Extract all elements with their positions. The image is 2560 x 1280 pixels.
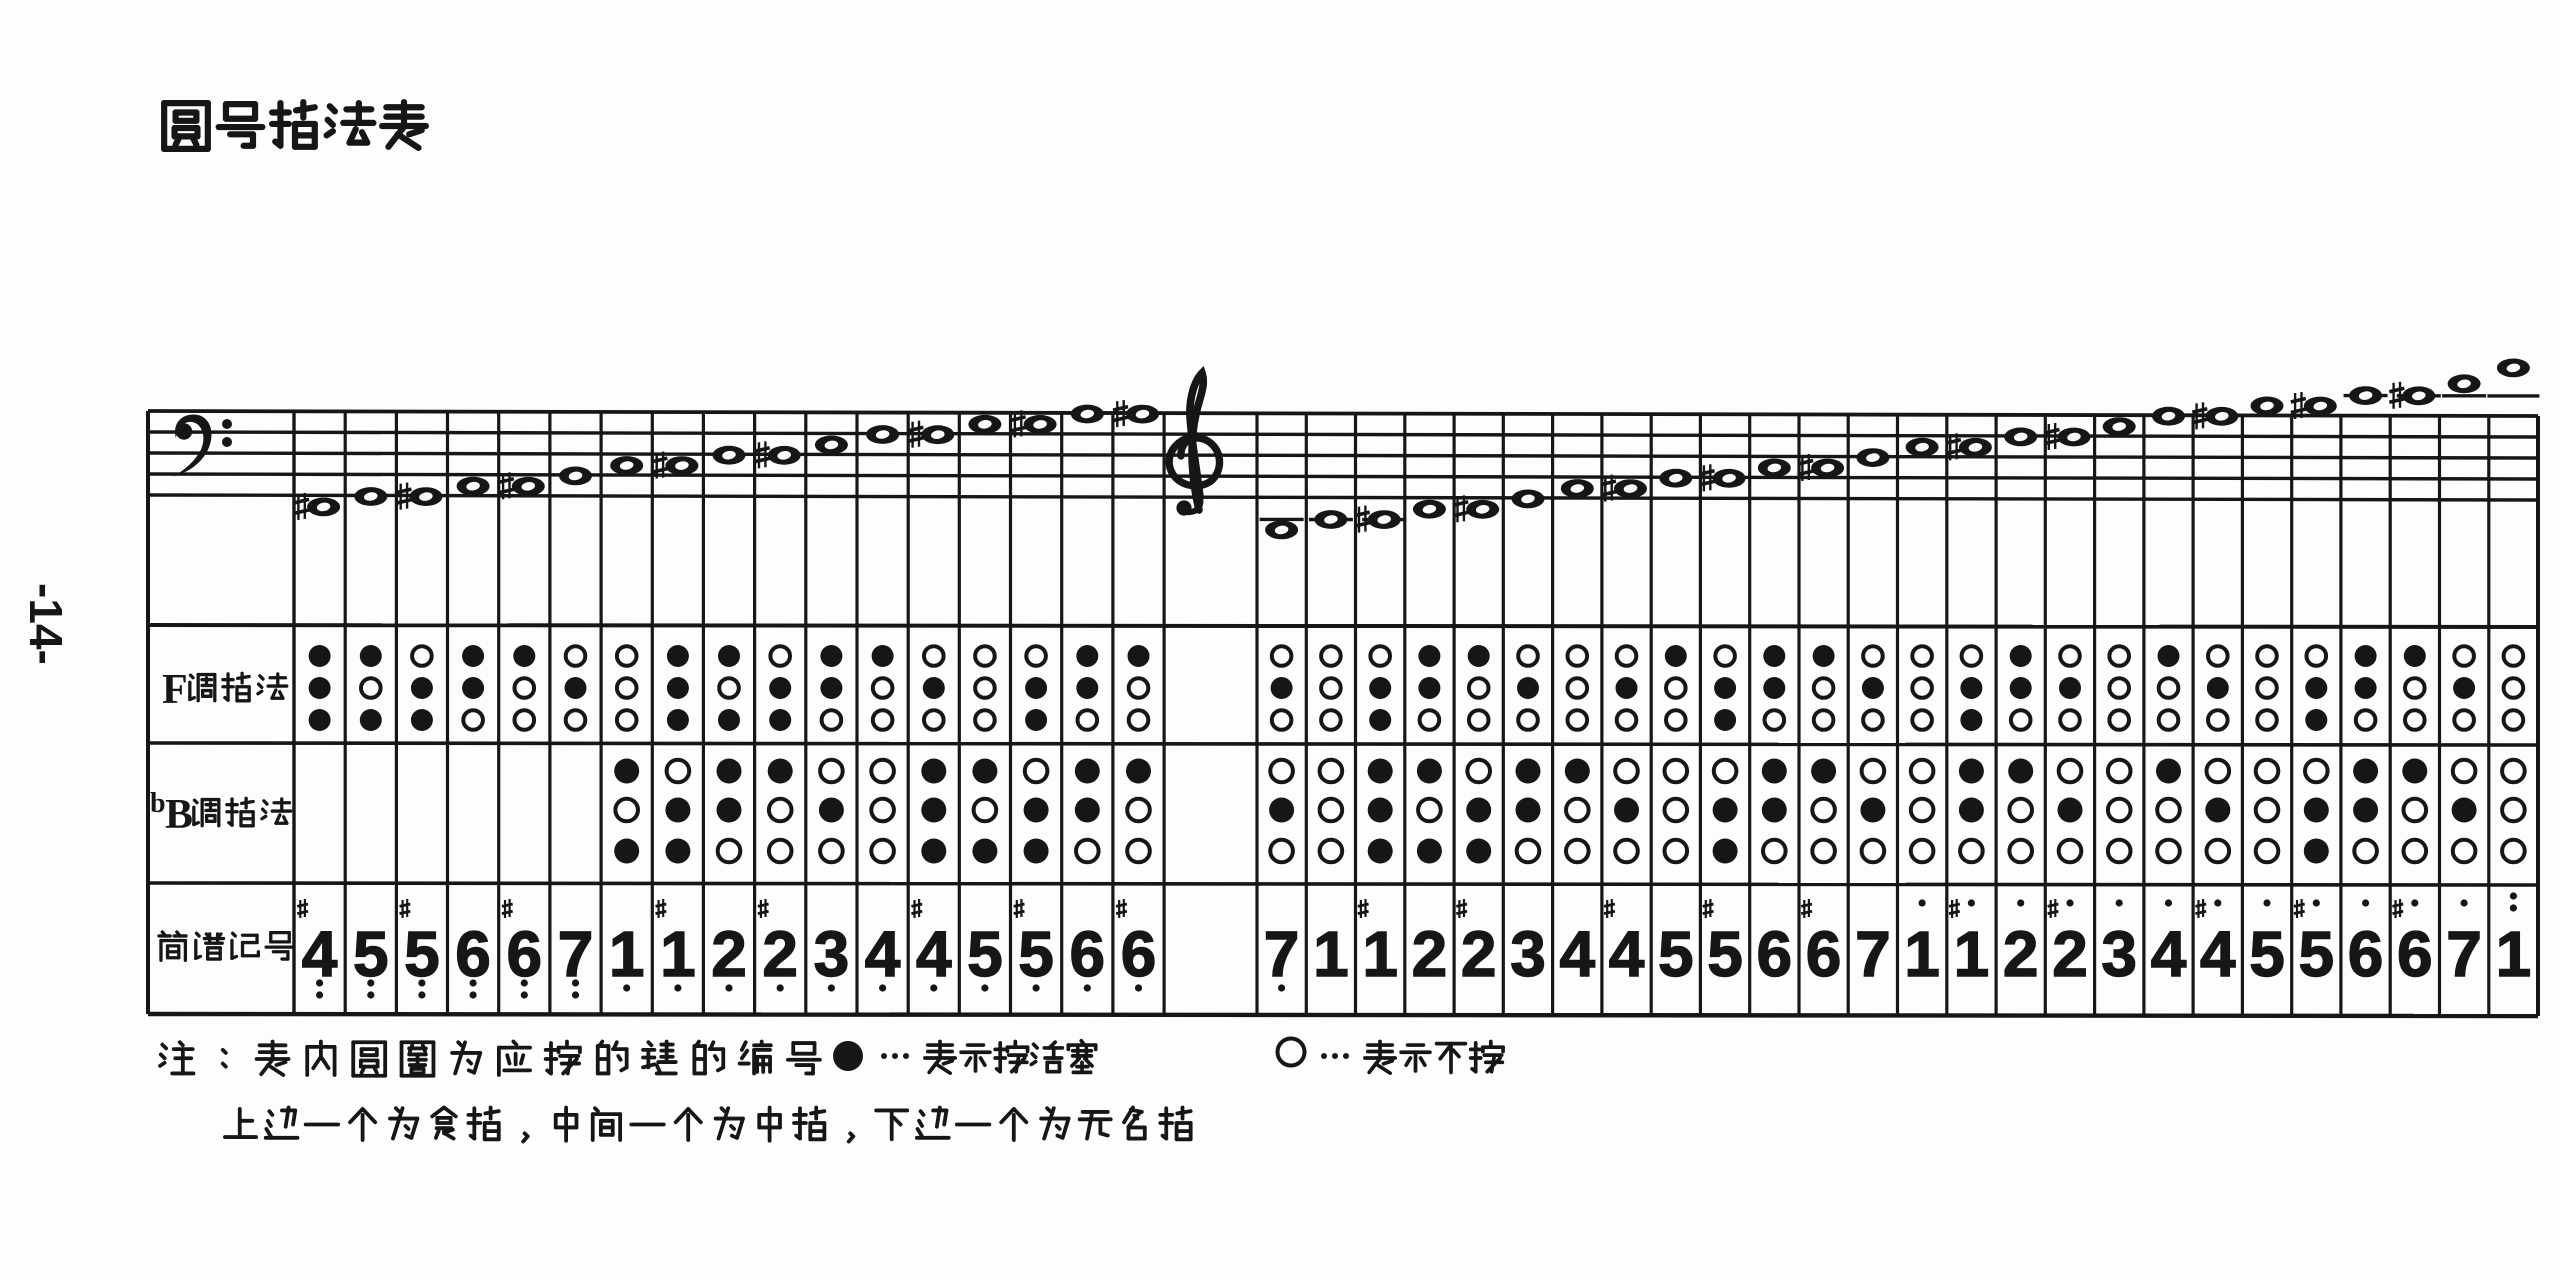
svg-text:5: 5 [1707, 918, 1743, 990]
svg-text:2: 2 [762, 918, 798, 990]
svg-text:2: 2 [1412, 918, 1448, 990]
svg-text:1: 1 [2496, 918, 2532, 990]
svg-text:6: 6 [455, 918, 491, 990]
svg-text:7: 7 [2446, 918, 2482, 990]
svg-text:4: 4 [916, 918, 952, 990]
svg-text:3: 3 [1510, 918, 1546, 990]
svg-text:4: 4 [2200, 918, 2236, 990]
svg-text:6: 6 [507, 918, 543, 990]
svg-text:6: 6 [2348, 918, 2384, 990]
svg-text:5: 5 [967, 918, 1003, 990]
svg-text:6: 6 [1757, 918, 1793, 990]
svg-text:5: 5 [2299, 918, 2335, 990]
svg-text:-14-: -14- [20, 583, 72, 665]
svg-text:7: 7 [1264, 918, 1300, 990]
svg-text:4: 4 [1609, 918, 1645, 990]
svg-text:4: 4 [302, 918, 338, 990]
svg-text:5: 5 [353, 918, 389, 990]
svg-text:6: 6 [1121, 918, 1157, 990]
svg-text:4: 4 [1560, 918, 1596, 990]
svg-text:5: 5 [1658, 918, 1694, 990]
svg-text:1: 1 [1904, 918, 1940, 990]
svg-text:4: 4 [865, 918, 901, 990]
svg-text:6: 6 [1070, 918, 1106, 990]
svg-text:1: 1 [609, 918, 645, 990]
svg-text:5: 5 [2249, 918, 2285, 990]
svg-text:6: 6 [1806, 918, 1842, 990]
svg-text:b: b [150, 788, 166, 819]
svg-text:5: 5 [404, 918, 440, 990]
svg-text:F: F [162, 667, 188, 713]
svg-text:5: 5 [1018, 918, 1054, 990]
svg-text:6: 6 [2397, 918, 2433, 990]
svg-text:3: 3 [814, 918, 850, 990]
svg-text:2: 2 [2003, 918, 2039, 990]
svg-text:3: 3 [2101, 918, 2137, 990]
svg-text:1: 1 [1362, 918, 1398, 990]
svg-text:2: 2 [1461, 918, 1497, 990]
svg-text:2: 2 [711, 918, 747, 990]
svg-text:7: 7 [1855, 918, 1891, 990]
svg-text:4: 4 [2151, 918, 2187, 990]
svg-text:7: 7 [558, 918, 594, 990]
svg-text:B: B [165, 792, 193, 838]
svg-text:1: 1 [660, 918, 696, 990]
svg-text:1: 1 [1954, 918, 1990, 990]
svg-text:1: 1 [1313, 918, 1349, 990]
svg-text:2: 2 [2052, 918, 2088, 990]
